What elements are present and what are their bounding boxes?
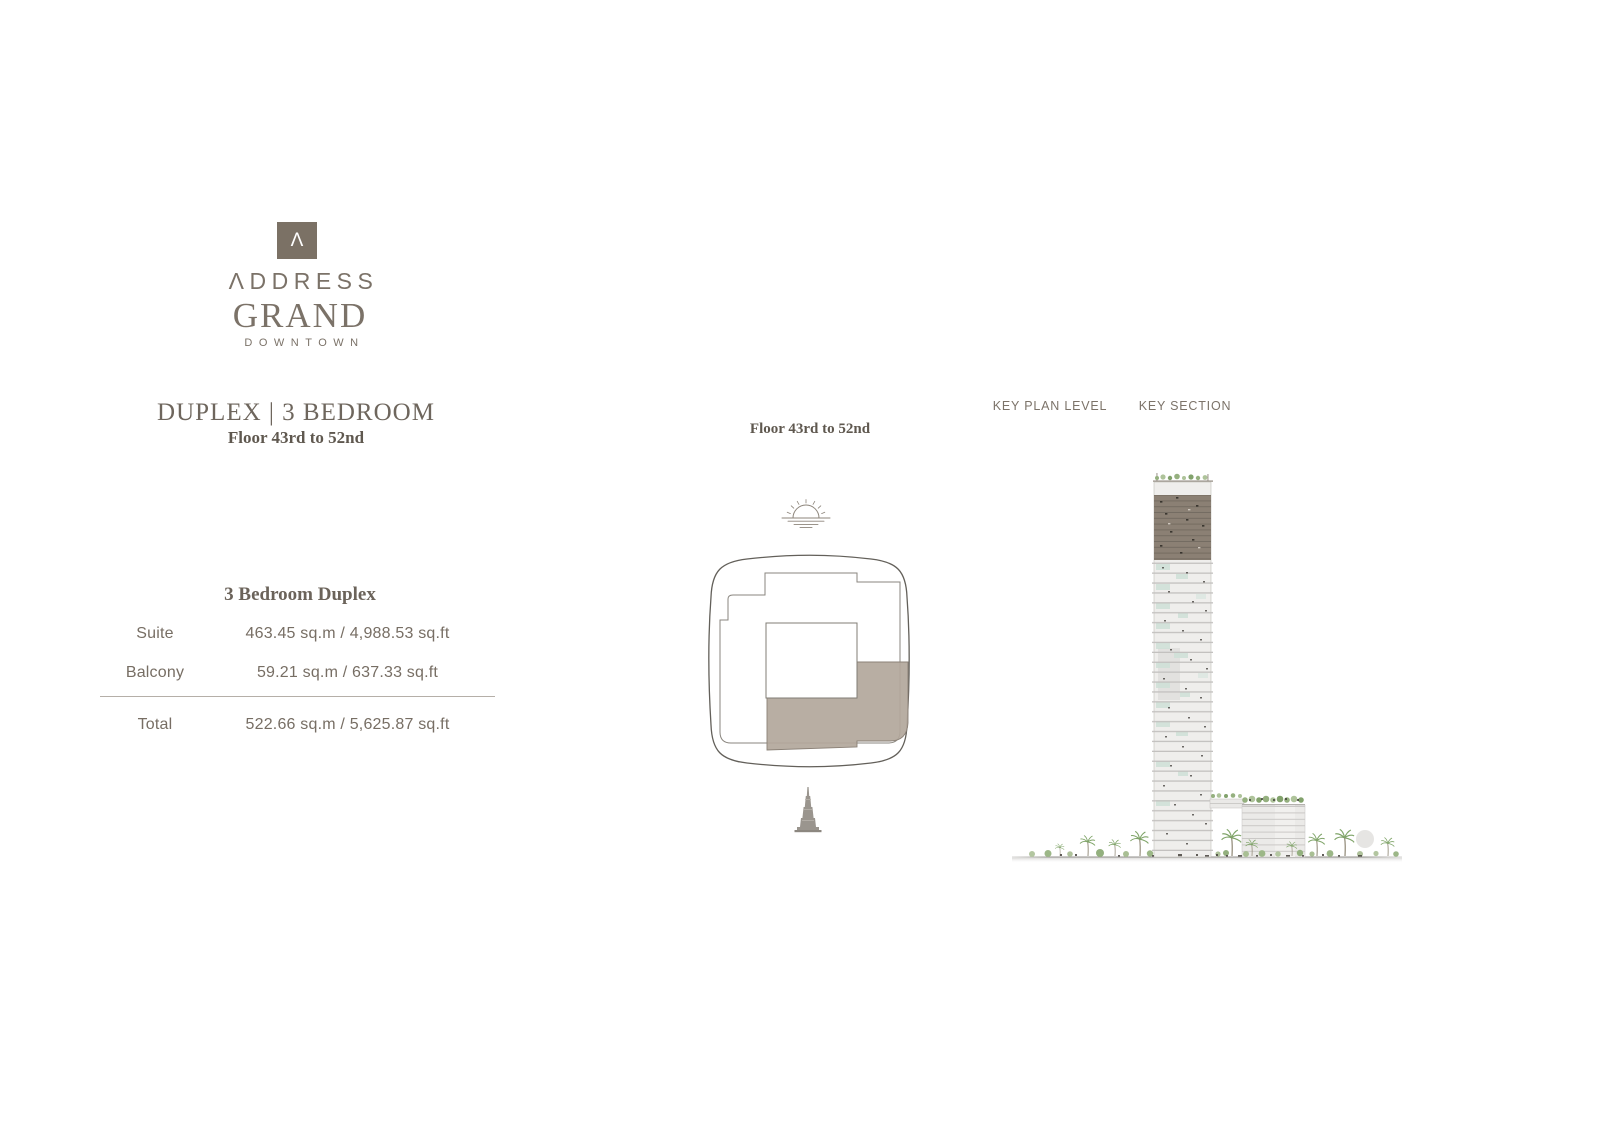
floors-highlight-band — [1154, 495, 1211, 560]
area-table-heading: 3 Bedroom Duplex — [85, 584, 515, 606]
row-label: Suite — [85, 625, 225, 643]
link-bridge — [1210, 793, 1244, 808]
key-section-label: KEY SECTION — [1105, 399, 1265, 413]
key-plan-diagram — [695, 545, 915, 770]
brochure-page: Λ ΛDDRESS GRAND DOWNTOWN DUPLEX | 3 BEDR… — [0, 0, 1600, 1125]
roof-garden — [1155, 474, 1207, 481]
key-plan-floor-label: Floor 43rd to 52nd — [710, 421, 910, 438]
table-row-suite: Suite 463.45 sq.m / 4,988.53 sq.ft — [85, 625, 470, 643]
table-divider — [100, 696, 495, 697]
brand-name-grand: GRAND — [198, 296, 400, 336]
brand-mark-icon: Λ — [277, 222, 317, 259]
table-row-balcony: Balcony 59.21 sq.m / 637.33 sq.ft — [85, 664, 470, 682]
ground-shadow — [1012, 858, 1402, 863]
row-label: Total — [85, 716, 225, 734]
brand-name-downtown: DOWNTOWN — [198, 337, 405, 349]
tower — [1152, 473, 1213, 857]
row-value: 522.66 sq.m / 5,625.87 sq.ft — [225, 716, 470, 734]
background-blob — [1356, 830, 1374, 848]
table-row-total: Total 522.66 sq.m / 5,625.87 sq.ft — [85, 716, 470, 734]
row-value: 463.45 sq.m / 4,988.53 sq.ft — [225, 625, 470, 643]
row-value: 59.21 sq.m / 637.33 sq.ft — [225, 664, 470, 682]
core-square — [766, 623, 857, 698]
key-section-elevation — [1000, 455, 1410, 870]
unit-title: DUPLEX | 3 BEDROOM — [130, 399, 462, 427]
brand-mark-glyph: Λ — [291, 230, 304, 252]
brand-name-address: ΛDDRESS — [198, 268, 404, 295]
row-label: Balcony — [85, 664, 225, 682]
unit-floor-range: Floor 43rd to 52nd — [130, 428, 462, 448]
podium-roof-garden — [1242, 796, 1304, 803]
street-trees — [1029, 829, 1399, 857]
burj-khalifa-icon — [794, 787, 822, 834]
sunrise-over-water-icon — [778, 496, 834, 532]
